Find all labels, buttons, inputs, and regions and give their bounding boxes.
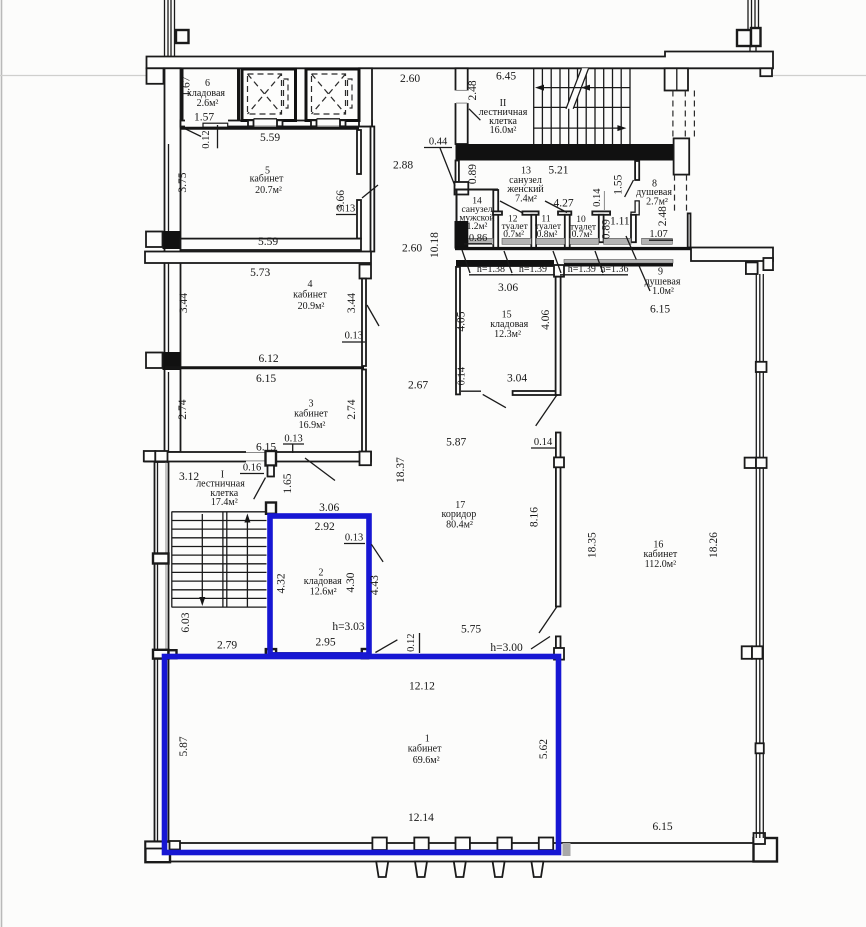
svg-text:3.75: 3.75: [177, 172, 189, 192]
svg-text:3.06: 3.06: [319, 502, 339, 514]
svg-text:6.45: 6.45: [496, 70, 516, 82]
svg-text:0.14: 0.14: [457, 366, 468, 385]
svg-text:2.95: 2.95: [316, 637, 336, 649]
svg-text:5.59: 5.59: [258, 236, 278, 248]
svg-text:10.18: 10.18: [429, 232, 441, 258]
svg-text:0.13: 0.13: [345, 331, 363, 342]
svg-text:69.6м²: 69.6м²: [413, 755, 440, 766]
svg-text:4.27: 4.27: [554, 198, 574, 210]
svg-text:2.74: 2.74: [346, 399, 358, 419]
svg-text:1.2м²: 1.2м²: [467, 222, 488, 232]
svg-text:h=3.03: h=3.03: [332, 621, 365, 633]
svg-text:2.74: 2.74: [177, 399, 189, 419]
svg-text:4.05: 4.05: [456, 311, 468, 331]
svg-text:18.37: 18.37: [395, 457, 407, 483]
svg-text:6.15: 6.15: [650, 304, 670, 316]
svg-text:16.9м²: 16.9м²: [299, 420, 326, 431]
svg-text:5.87: 5.87: [446, 436, 466, 448]
svg-text:кабинет: кабинет: [408, 744, 442, 755]
svg-text:12.12: 12.12: [409, 681, 435, 693]
svg-text:2.79: 2.79: [217, 640, 237, 652]
svg-text:18.26: 18.26: [708, 532, 720, 558]
svg-text:3.04: 3.04: [507, 373, 527, 385]
svg-text:0.13: 0.13: [284, 434, 302, 445]
svg-text:5.59: 5.59: [260, 132, 280, 144]
svg-text:0.14: 0.14: [534, 437, 553, 448]
svg-text:h=1.38: h=1.38: [477, 264, 505, 275]
svg-text:1.55: 1.55: [612, 174, 624, 194]
svg-text:коридор: коридор: [442, 509, 477, 520]
svg-text:2.60: 2.60: [400, 73, 420, 85]
svg-text:кладовая: кладовая: [304, 576, 342, 587]
svg-text:0.12: 0.12: [406, 634, 417, 652]
svg-text:кабинет: кабинет: [293, 290, 327, 301]
svg-text:0.89: 0.89: [600, 219, 612, 239]
svg-text:4.30: 4.30: [345, 572, 357, 592]
svg-text:2.92: 2.92: [315, 521, 335, 533]
svg-text:5.75: 5.75: [461, 624, 481, 636]
svg-text:0.13: 0.13: [337, 204, 355, 215]
svg-text:2.88: 2.88: [393, 160, 413, 172]
svg-text:112.0м²: 112.0м²: [645, 559, 676, 570]
svg-text:0.13: 0.13: [345, 533, 363, 544]
svg-text:0.86: 0.86: [469, 233, 487, 244]
svg-text:1.11: 1.11: [610, 215, 630, 227]
svg-text:0.8м²: 0.8м²: [537, 230, 558, 240]
svg-text:6.03: 6.03: [180, 612, 192, 632]
svg-text:12.14: 12.14: [408, 812, 434, 824]
svg-text:0.14: 0.14: [592, 188, 603, 207]
svg-text:6.15: 6.15: [652, 821, 672, 833]
svg-text:h=1.39: h=1.39: [568, 264, 596, 275]
svg-text:20.9м²: 20.9м²: [298, 301, 325, 312]
svg-text:5.21: 5.21: [548, 165, 568, 177]
svg-text:20.7м²: 20.7м²: [255, 185, 282, 196]
svg-text:80.4м²: 80.4м²: [446, 520, 473, 531]
svg-text:4.43: 4.43: [369, 575, 381, 595]
svg-text:5.87: 5.87: [178, 736, 190, 756]
svg-text:12.3м²: 12.3м²: [494, 329, 521, 340]
svg-text:0.44: 0.44: [429, 137, 448, 148]
svg-text:6.15: 6.15: [256, 442, 276, 454]
svg-text:кабинет: кабинет: [250, 174, 284, 185]
svg-text:0.89: 0.89: [467, 164, 479, 184]
svg-text:1.07: 1.07: [649, 229, 667, 240]
svg-text:2.67: 2.67: [408, 380, 428, 392]
svg-text:2.7м²: 2.7м²: [646, 197, 668, 208]
svg-text:16.0м²: 16.0м²: [490, 125, 517, 136]
svg-text:1.0м²: 1.0м²: [652, 286, 674, 297]
svg-text:0.16: 0.16: [243, 463, 261, 474]
svg-text:12.6м²: 12.6м²: [310, 587, 337, 598]
svg-text:1.65: 1.65: [282, 473, 294, 493]
svg-text:0.7м²: 0.7м²: [503, 230, 524, 240]
svg-text:3.44: 3.44: [346, 293, 358, 313]
svg-text:5.73: 5.73: [250, 267, 270, 279]
svg-text:h=1.39: h=1.39: [519, 264, 547, 275]
svg-text:17.4м²: 17.4м²: [211, 497, 238, 508]
svg-text:2.48: 2.48: [657, 206, 669, 226]
svg-text:7.4м²: 7.4м²: [515, 194, 537, 205]
svg-text:4.32: 4.32: [275, 573, 287, 593]
svg-text:6.15: 6.15: [256, 373, 276, 385]
svg-text:18.35: 18.35: [586, 532, 598, 558]
svg-text:0.12: 0.12: [201, 130, 212, 148]
svg-text:5.62: 5.62: [538, 739, 550, 759]
svg-text:2.6м²: 2.6м²: [197, 98, 219, 109]
svg-text:0.7м²: 0.7м²: [572, 230, 593, 240]
svg-text:3.06: 3.06: [498, 282, 518, 294]
svg-text:1.57: 1.57: [194, 112, 214, 124]
svg-text:2.48: 2.48: [467, 80, 479, 100]
svg-text:6.12: 6.12: [259, 353, 279, 365]
svg-text:4.06: 4.06: [540, 309, 552, 329]
svg-text:3.44: 3.44: [178, 293, 190, 313]
svg-text:h=1.36: h=1.36: [600, 264, 628, 275]
svg-text:кабинет: кабинет: [294, 409, 328, 420]
svg-text:2.60: 2.60: [402, 243, 422, 255]
svg-text:8.16: 8.16: [528, 507, 540, 527]
svg-text:h=3.00: h=3.00: [490, 642, 523, 654]
